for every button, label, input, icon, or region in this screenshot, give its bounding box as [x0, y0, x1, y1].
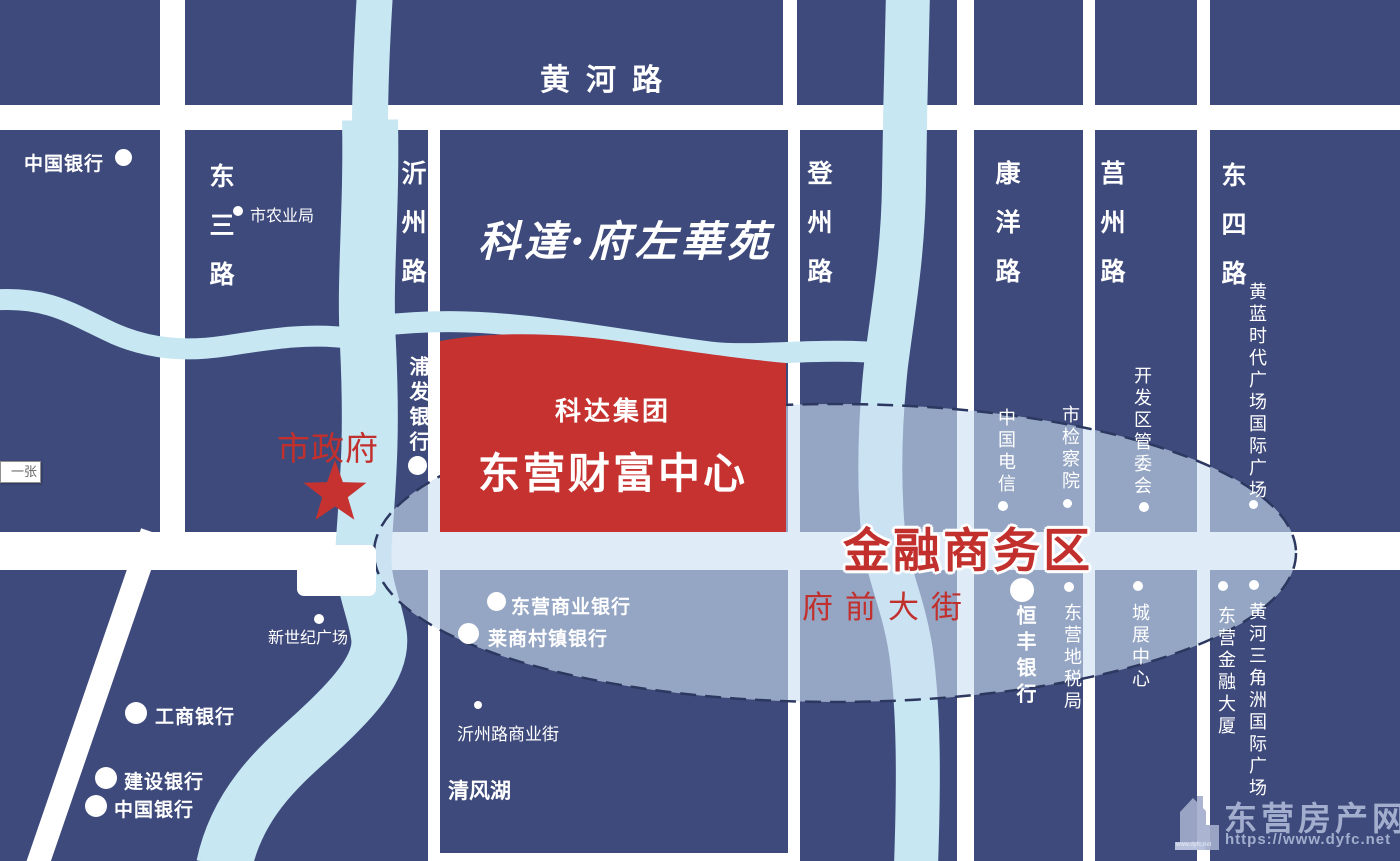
poi-dot	[233, 206, 243, 216]
road-label-dongsan: 东三路	[202, 163, 238, 310]
poi-dot	[487, 592, 506, 611]
poi-dot	[998, 501, 1008, 511]
city-block	[1210, 0, 1400, 105]
tooltip-fragment: 一张	[0, 461, 41, 483]
road-label-kangyang: 康洋路	[988, 160, 1024, 307]
poi-dot	[474, 701, 482, 709]
poi-dot	[1218, 581, 1228, 591]
poi-dot	[125, 702, 147, 724]
city-block	[797, 0, 957, 105]
poi-agriculture-bureau: 市农业局	[250, 202, 314, 226]
city-block	[0, 0, 160, 105]
poi-procuratorate: 市检察院	[1057, 405, 1083, 493]
poi-laishang-bank: 莱商村镇银行	[488, 624, 608, 651]
poi-dot	[314, 614, 324, 624]
location-map: 黄河路 中国银行 东三路 市农业局 沂州路 科達·府左華苑 浦发银行 市政府 科…	[0, 0, 1400, 861]
poi-city-exhibition-center: 城展中心	[1127, 603, 1153, 691]
poi-delta-international-plaza: 黄河三角洲国际广场	[1244, 602, 1270, 800]
poi-qingfeng-lake: 清风湖	[448, 775, 511, 805]
poi-finance-tower: 东营金融大厦	[1213, 606, 1239, 738]
poi-huanglan-plaza: 黄蓝时代广场国际广场	[1244, 282, 1270, 502]
poi-china-telecom: 中国电信	[993, 408, 1019, 496]
city-government-label: 市政府	[277, 422, 379, 470]
poi-local-tax-bureau: 东营地税局	[1059, 603, 1085, 713]
poi-dot	[458, 623, 479, 644]
project-name-label: 东营财富中心	[420, 440, 806, 501]
poi-dot	[1139, 502, 1149, 512]
calligraphy-title: 科達·府左華苑	[478, 208, 773, 269]
poi-dot	[1064, 582, 1074, 592]
financial-district-label: 金融商务区	[843, 512, 1093, 581]
new-century-plaza-building	[297, 545, 376, 596]
road-label-fuqian: 府前大街	[802, 582, 974, 627]
poi-bank-of-china-top: 中国银行	[24, 149, 104, 176]
poi-dot	[85, 795, 107, 817]
poi-dot	[1010, 578, 1034, 602]
poi-new-century-plaza: 新世纪广场	[268, 624, 348, 648]
poi-dot	[1249, 500, 1258, 509]
city-block	[1095, 0, 1197, 105]
poi-dot	[95, 767, 117, 789]
poi-dot	[1133, 581, 1143, 591]
poi-construction-bank: 建设银行	[124, 767, 204, 794]
poi-yizhou-commercial-street: 沂州路商业街	[457, 720, 559, 745]
watermark-icon-caption: www.dyfc.net	[1176, 842, 1211, 848]
poi-hengfeng-bank: 恒丰银行	[1010, 605, 1039, 709]
project-group-label: 科达集团	[440, 391, 786, 428]
road-label-juzhou: 莒州路	[1093, 160, 1129, 307]
poi-bank-of-china-bottom: 中国银行	[114, 795, 194, 822]
road-label-dengzhou: 登州路	[800, 160, 836, 307]
poi-dot	[1063, 499, 1072, 508]
watermark-site-url: https://www.dyfc.net	[1225, 831, 1391, 848]
poi-dongying-commercial-bank: 东营商业银行	[511, 592, 631, 619]
poi-dot	[1249, 580, 1259, 590]
city-block	[185, 0, 783, 105]
poi-icbc-bank: 工商银行	[155, 702, 235, 729]
road-label-huanghe: 黄河路	[540, 55, 678, 99]
poi-development-zone-committee: 开发区管委会	[1129, 366, 1155, 498]
road-label-yizhou: 沂州路	[394, 160, 430, 307]
city-block	[974, 0, 1083, 105]
poi-dot	[115, 149, 132, 166]
